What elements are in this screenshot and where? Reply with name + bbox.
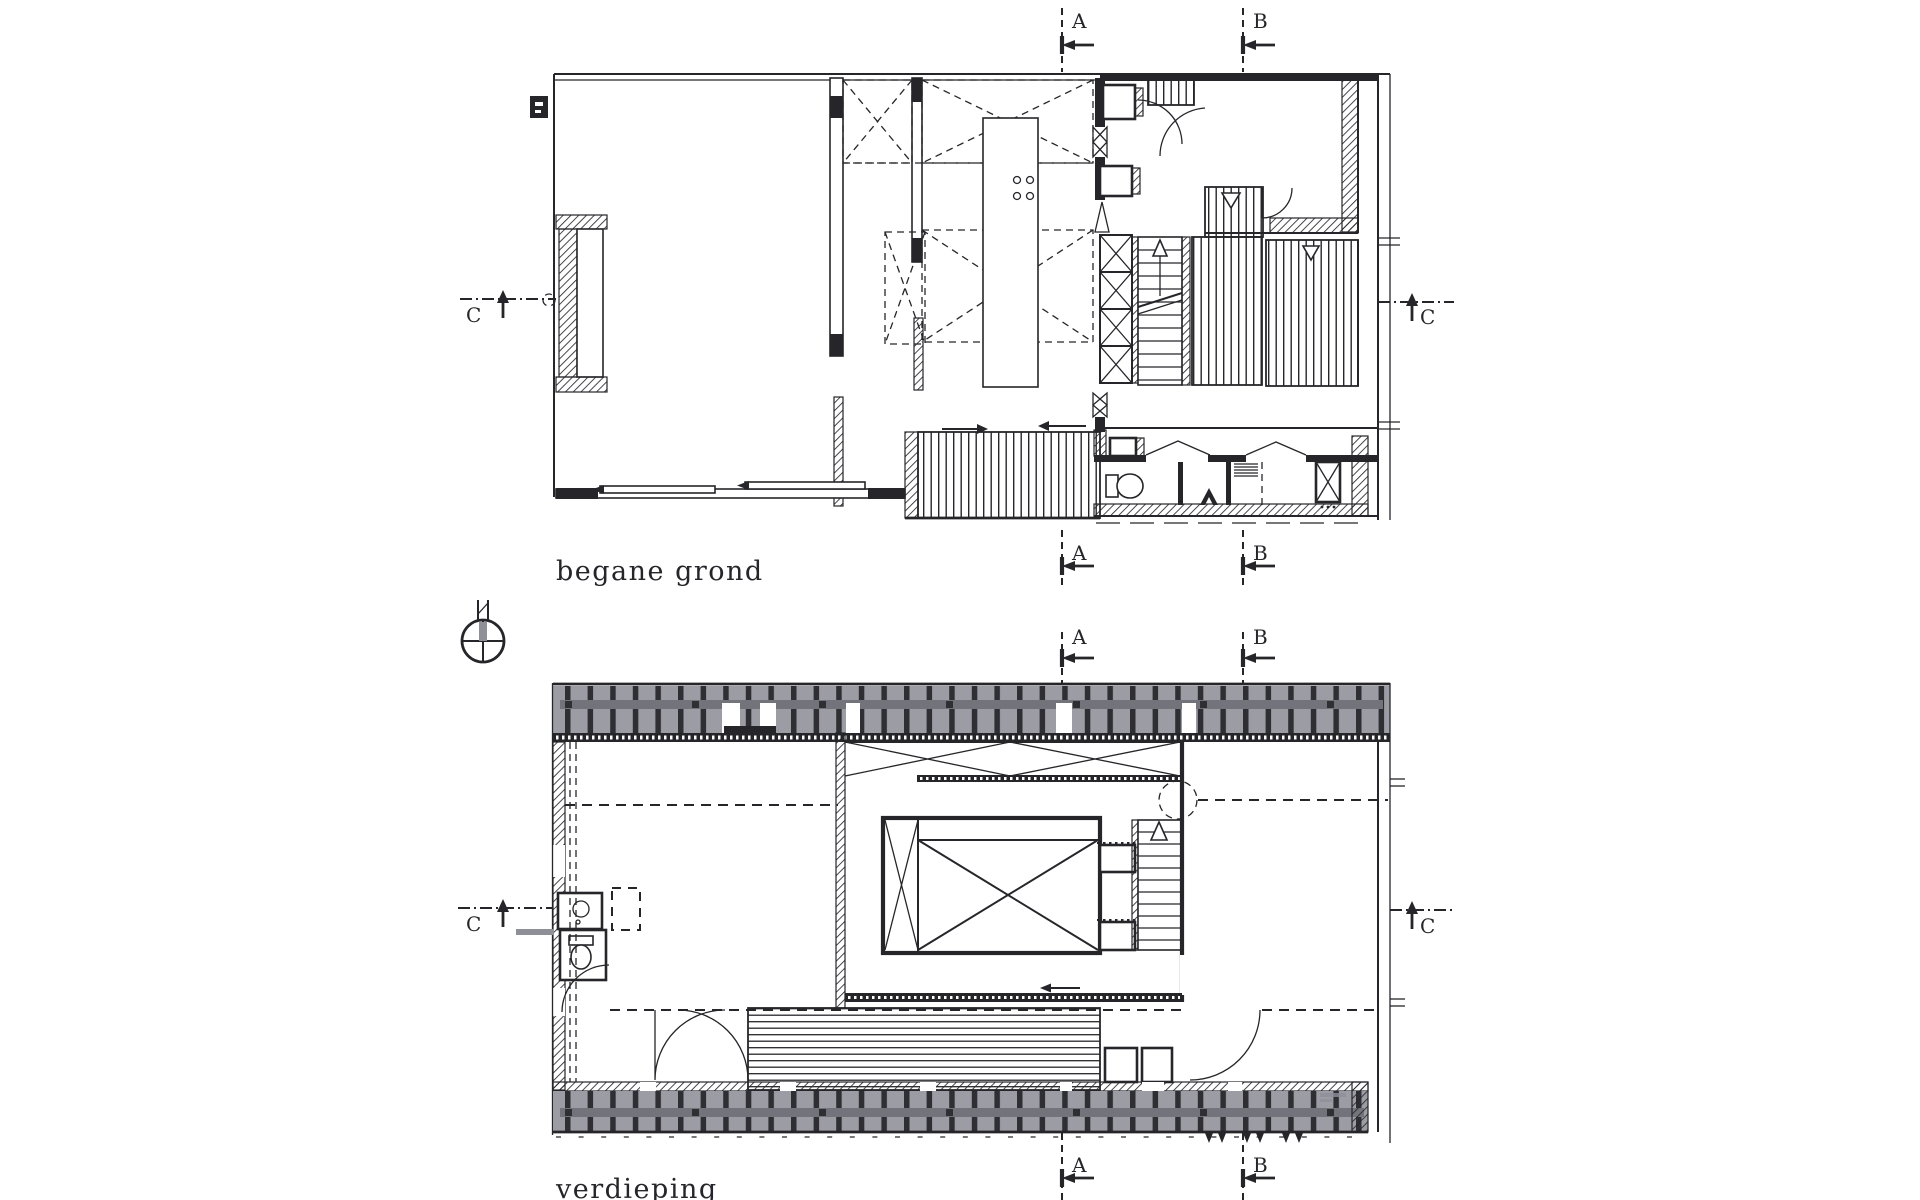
- truss-band: [845, 742, 1182, 782]
- kitchen-island: [983, 118, 1038, 387]
- section-marker-a-top-verdieping: A: [1062, 625, 1094, 683]
- x-brace-panel: [1316, 462, 1340, 508]
- striped-floor-zones: [1192, 187, 1358, 386]
- entry-steps: [1148, 77, 1194, 105]
- entry-symbol: [530, 96, 548, 118]
- staircase-upper: [1132, 820, 1182, 950]
- x-braced-shaft-wall: [1100, 235, 1138, 383]
- section-marker-b-bottom: B: [1243, 530, 1275, 590]
- upper-deck: [655, 984, 1260, 1091]
- svg-text:A: A: [1071, 541, 1087, 565]
- drain-symbol: [1200, 488, 1218, 505]
- fireplace: [543, 215, 607, 392]
- section-marker-a-bottom-verdieping: A: [1062, 1133, 1094, 1200]
- section-marker-a-bottom: A: [1062, 530, 1094, 590]
- louver-band-bottom: [553, 1082, 1368, 1143]
- svg-text:C: C: [1420, 914, 1435, 938]
- marker-letter: A: [1071, 9, 1087, 33]
- watermark-smudge: [1320, 1093, 1346, 1097]
- sliding-door-wall: [556, 481, 905, 499]
- svg-text:C: C: [466, 912, 481, 936]
- section-marker-c-left: C: [460, 290, 556, 327]
- floor-plan-verdieping: [516, 683, 1405, 1143]
- blueprint-canvas: A B A B: [0, 0, 1920, 1200]
- section-marker-b-top-verdieping: B: [1243, 625, 1275, 683]
- terrace-deck: [905, 421, 1100, 518]
- staircase-ground: [1138, 237, 1190, 385]
- north-arrow-compass: [462, 600, 504, 662]
- plan-label-begane-grond: begane grond: [556, 556, 764, 587]
- section-marker-a-top: A: [1062, 8, 1094, 72]
- svg-text:B: B: [1253, 1153, 1268, 1177]
- void-dashed-openings: [843, 80, 1093, 344]
- section-marker-b-top: B: [1243, 8, 1275, 72]
- floor-plan-begane-grond: [530, 74, 1400, 523]
- louver-band-top: [553, 684, 1390, 742]
- service-core: [1093, 77, 1205, 432]
- svg-text:B: B: [1253, 9, 1268, 33]
- plan-label-verdieping: verdieping: [555, 1174, 718, 1200]
- floor-plan-drawing: A B A B: [0, 0, 1920, 1200]
- svg-text:B: B: [1253, 625, 1268, 649]
- svg-text:B: B: [1253, 541, 1268, 565]
- section-marker-c-right-verdieping: C: [1390, 901, 1454, 938]
- section-marker-b-bottom-verdieping: B: [1243, 1133, 1275, 1200]
- svg-text:A: A: [1071, 1153, 1087, 1177]
- central-wall: [836, 733, 845, 1008]
- svg-text:C: C: [466, 303, 481, 327]
- toilet: [1106, 474, 1143, 498]
- bath-rooms-band: [1094, 428, 1378, 523]
- svg-text:A: A: [1071, 625, 1087, 649]
- svg-text:C: C: [1420, 305, 1435, 329]
